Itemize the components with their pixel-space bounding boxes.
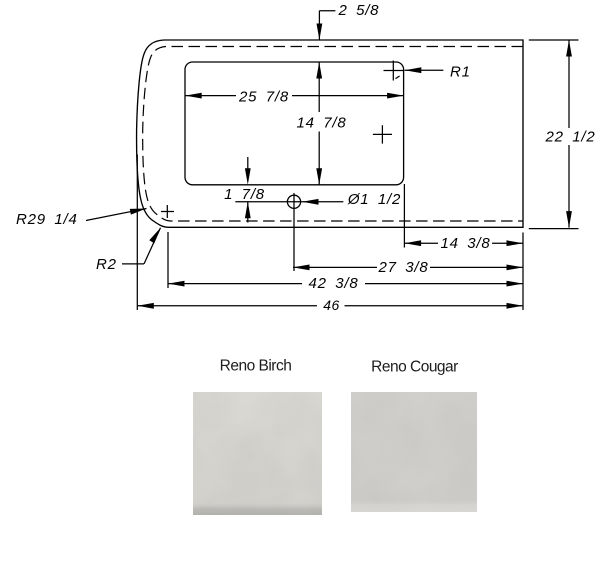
svg-text:Reno Cougar: Reno Cougar (371, 359, 458, 376)
svg-text:14 7/8: 14 7/8 (296, 115, 346, 132)
svg-text:2 5/8: 2 5/8 (337, 2, 379, 19)
svg-text:R1: R1 (450, 64, 471, 81)
svg-text:Ø1 1/2: Ø1 1/2 (347, 191, 401, 208)
svg-text:Reno Birch: Reno Birch (220, 358, 292, 375)
svg-text:42 3/8: 42 3/8 (308, 275, 358, 292)
svg-text:1 7/8: 1 7/8 (224, 186, 265, 203)
svg-text:14 3/8: 14 3/8 (440, 235, 490, 252)
svg-text:R29 1/4: R29 1/4 (16, 211, 78, 228)
svg-text:46: 46 (323, 297, 340, 313)
svg-text:25 7/8: 25 7/8 (238, 88, 289, 105)
svg-text:R2: R2 (96, 256, 117, 273)
svg-text:22 1/2: 22 1/2 (544, 129, 595, 146)
svg-text:27 3/8: 27 3/8 (377, 259, 428, 276)
